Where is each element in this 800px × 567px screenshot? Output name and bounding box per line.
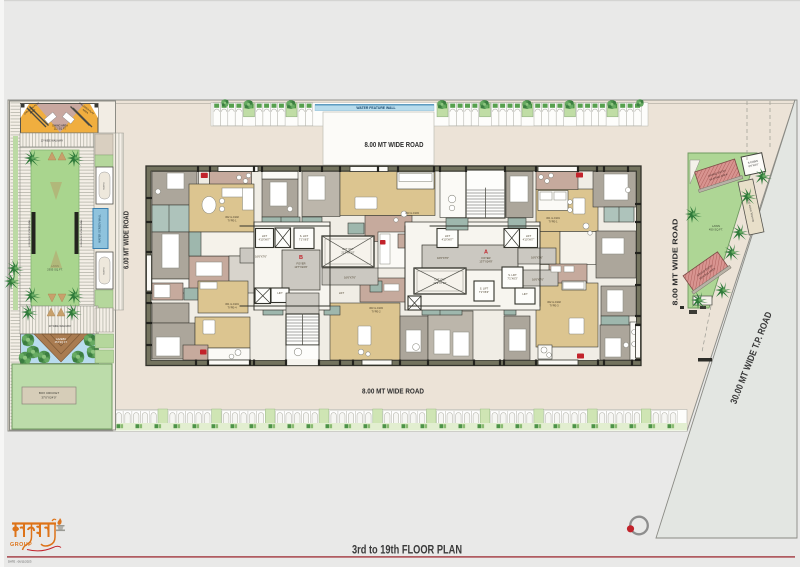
svg-text:LIFT: LIFT <box>277 291 283 295</box>
svg-text:303 to 1903: 303 to 1903 <box>405 211 419 215</box>
svg-text:13'7"X24'9": 13'7"X24'9" <box>479 260 492 264</box>
svg-text:TYPE-2: TYPE-2 <box>371 310 381 314</box>
svg-text:302 to 1902: 302 to 1902 <box>547 300 561 304</box>
svg-text:7'1"X6'3": 7'1"X6'3" <box>479 290 489 294</box>
svg-text:20' WIDE WALKWAY: 20' WIDE WALKWAY <box>49 325 72 328</box>
svg-text:LOW HEIGHT SCREEN WALL: LOW HEIGHT SCREEN WALL <box>28 218 31 246</box>
svg-text:13'7"X24'9": 13'7"X24'9" <box>294 265 307 269</box>
svg-text:2935 SQ.FT.: 2935 SQ.FT. <box>47 268 63 272</box>
svg-text:A: A <box>484 250 488 256</box>
svg-text:7'1"X6'3": 7'1"X6'3" <box>507 277 517 281</box>
svg-text:TYPE-1: TYPE-1 <box>227 219 237 223</box>
svg-text:21'9"X7'10": 21'9"X7'10" <box>433 281 446 285</box>
svg-text:LIFT: LIFT <box>339 291 345 295</box>
svg-text:21'9"X7'10": 21'9"X7'10" <box>341 251 354 255</box>
svg-text:BOX CRICKET: BOX CRICKET <box>39 391 60 395</box>
svg-text:303 to 1903: 303 to 1903 <box>369 306 383 310</box>
svg-text:3rd to 19th FLOOR PLAN: 3rd to 19th FLOOR PLAN <box>352 543 462 557</box>
svg-text:GROUP: GROUP <box>10 542 32 548</box>
svg-text:CUT OUT: CUT OUT <box>342 247 354 251</box>
svg-text:10' WIDE WALKWAY: 10' WIDE WALKWAY <box>41 140 64 143</box>
svg-text:8.00 MT WIDE ROAD: 8.00 MT WIDE ROAD <box>365 142 424 149</box>
svg-text:8.00 MT WIDE ROAD: 8.00 MT WIDE ROAD <box>362 388 424 395</box>
svg-text:16'6"X7'6": 16'6"X7'6" <box>531 256 543 260</box>
svg-text:450 SQ.FT.: 450 SQ.FT. <box>709 228 723 232</box>
svg-text:WATER SCREEN WALL: WATER SCREEN WALL <box>98 214 102 243</box>
svg-text:FOYER: FOYER <box>297 262 306 266</box>
svg-text:S. LIFT: S. LIFT <box>300 234 309 238</box>
svg-text:TYPE-1: TYPE-1 <box>548 220 558 224</box>
svg-text:4'10"X6'7": 4'10"X6'7" <box>523 238 535 242</box>
svg-text:CUT OUT: CUT OUT <box>434 278 446 282</box>
svg-text:LIFT: LIFT <box>522 292 528 296</box>
svg-text:16'6"X7'6": 16'6"X7'6" <box>532 278 544 282</box>
svg-text:DATE : 06/11/2023: DATE : 06/11/2023 <box>8 560 32 564</box>
svg-text:7'1"X6'3": 7'1"X6'3" <box>299 238 309 242</box>
svg-text:301 to 1901: 301 to 1901 <box>225 302 239 306</box>
svg-text:B: B <box>299 255 303 261</box>
svg-text:302 to 1902: 302 to 1902 <box>225 215 239 219</box>
svg-text:16'6"X7'6": 16'6"X7'6" <box>344 276 356 280</box>
svg-text:6.00 MT WIDE ROAD: 6.00 MT WIDE ROAD <box>124 211 131 269</box>
svg-text:8.00 MT WIDE ROAD: 8.00 MT WIDE ROAD <box>671 219 680 306</box>
svg-text:4'10"X6'7": 4'10"X6'7" <box>259 238 271 242</box>
svg-text:LOW HEIGHT SCREEN WALL: LOW HEIGHT SCREEN WALL <box>80 218 83 246</box>
svg-text:TYPE-4: TYPE-4 <box>227 306 237 310</box>
svg-text:LIFT: LIFT <box>262 234 268 238</box>
svg-text:LIFT: LIFT <box>445 234 451 238</box>
svg-text:LIFT: LIFT <box>526 234 532 238</box>
svg-text:SEATING: SEATING <box>103 182 106 190</box>
svg-text:37'0"X24'0": 37'0"X24'0" <box>41 396 56 400</box>
svg-text:FOYER: FOYER <box>482 256 491 260</box>
svg-text:453 SQ.FT.: 453 SQ.FT. <box>55 341 68 344</box>
svg-text:SEATING: SEATING <box>103 267 106 275</box>
svg-text:TYPE-3: TYPE-3 <box>549 304 559 308</box>
svg-text:S. LIFT: S. LIFT <box>508 273 517 277</box>
svg-text:112 SQ.FT.: 112 SQ.FT. <box>54 128 67 131</box>
svg-text:301 to 1901: 301 to 1901 <box>546 216 560 220</box>
svg-text:16'6"X7'6": 16'6"X7'6" <box>437 256 449 260</box>
svg-text:S. LIFT: S. LIFT <box>480 287 489 291</box>
svg-text:4'10"X6'7": 4'10"X6'7" <box>442 238 454 242</box>
svg-text:WATER FEATURE WALL: WATER FEATURE WALL <box>356 106 395 110</box>
svg-text:16'6"X7'6": 16'6"X7'6" <box>255 255 267 259</box>
